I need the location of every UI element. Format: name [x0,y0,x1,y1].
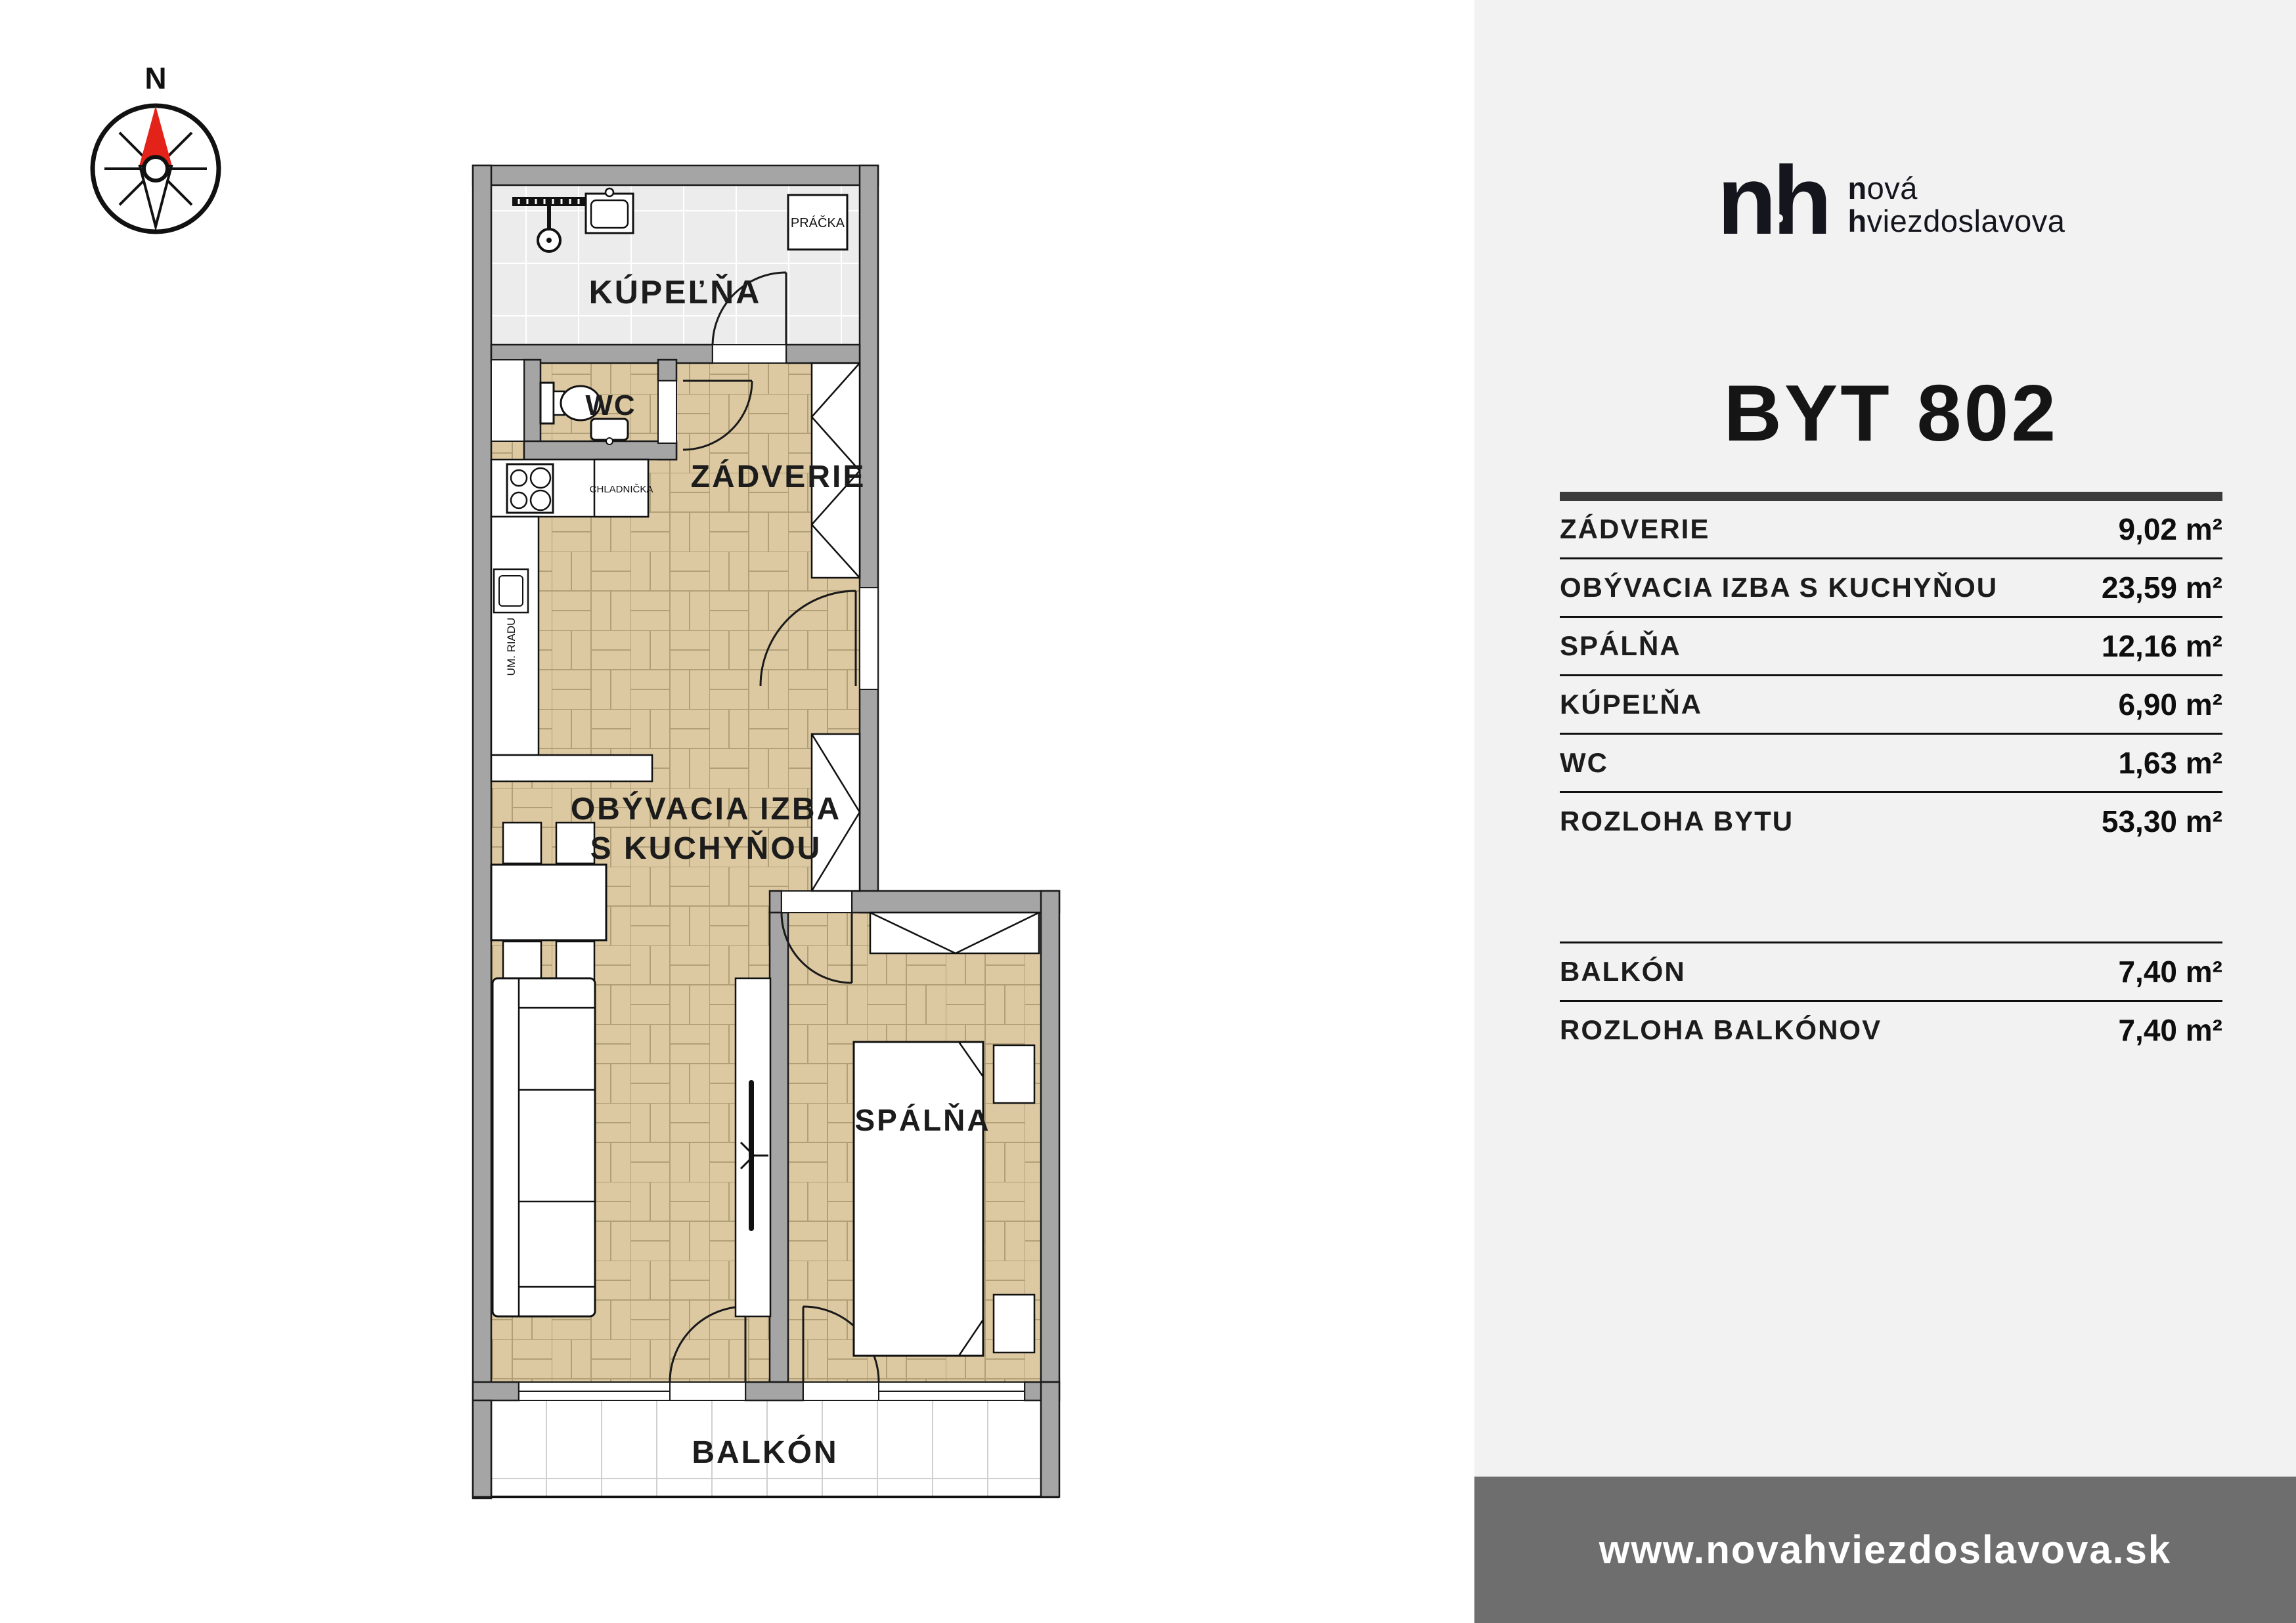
bath-sink-icon [586,188,633,233]
bedroom-window [879,1382,1025,1400]
row-value: 6,90 m² [2118,687,2222,722]
washer-label: PRÁČKA [791,215,845,230]
bathroom-label: KÚPEĽŇA [589,274,762,311]
sofa [493,978,595,1316]
table-row-spalna: SPÁLŇA 12,16 m² [1560,618,2222,676]
footer-link[interactable]: www.novahviezdoslavova.sk [1599,1527,2171,1572]
wall-north [473,165,878,185]
balcony-label: BALKÓN [692,1434,838,1470]
row-value: 12,16 m² [2102,628,2222,664]
kitchen-sink-icon [494,569,528,613]
stove-icon [507,464,553,513]
footer-bar: www.novahviezdoslavova.sk [1474,1477,2296,1623]
table-row-balkon: BALKÓN 7,40 m² [1560,943,2222,1002]
hall-label: ZÁDVERIE [691,459,866,494]
logo-mark: nh [1717,163,1828,238]
logo-word-2: hviezdoslavova [1847,205,2065,238]
nightstand [994,1295,1034,1352]
living-balcony-door-opening [670,1382,745,1400]
row-label: BALKÓN [1560,956,1686,987]
logo: nh nová hviezdoslavova [1560,163,2222,238]
balcony-table: BALKÓN 7,40 m² ROZLOHA BALKÓNOV 7,40 m² [1560,941,2222,1058]
info-panel: nh nová hviezdoslavova BYT 802 ZÁDVERIE … [1474,0,2296,1623]
floor-plan-svg: N [0,0,1474,1623]
row-label: ROZLOHA BYTU [1560,806,1794,837]
kitchen-peninsula [491,755,652,781]
apartment-title: BYT 802 [1560,367,2222,459]
table-row-wc: WC 1,63 m² [1560,735,2222,793]
compass-n-label: N [144,61,166,95]
logo-mark-text: nh [1717,146,1828,255]
wc-label: WC [585,389,636,422]
table-row-kupelna: KÚPEĽŇA 6,90 m² [1560,676,2222,735]
row-label: OBÝVACIA IZBA S KUCHYŇOU [1560,572,1998,603]
living-window [519,1382,670,1400]
row-value: 9,02 m² [2118,511,2222,547]
balcony-pillar-left [473,1400,491,1497]
bedroom-balcony-door-opening [803,1382,879,1400]
wc-sink-icon [591,419,628,444]
area-table: ZÁDVERIE 9,02 m² OBÝVACIA IZBA S KUCHYŇO… [1560,501,2222,1058]
row-value: 7,40 m² [2118,1012,2222,1048]
row-value: 23,59 m² [2102,570,2222,605]
fridge: CHLADNIČKA [590,460,653,517]
wall-east-upper [860,165,878,913]
dishwasher-label: UM. RIADU [505,618,518,676]
bathroom-door-opening [713,345,786,363]
table-row-total-area: ROZLOHA BYTU 53,30 m² [1560,793,2222,850]
row-label: SPÁLŇA [1560,630,1681,662]
logo-wordmark: nová hviezdoslavova [1847,163,2065,238]
living-label-line2: S KUCHYŇOU [590,830,822,866]
row-value: 53,30 m² [2102,804,2222,839]
wall-west [473,165,491,1498]
page: N [0,0,2296,1623]
living-label-line1: OBÝVACIA IZBA [571,791,841,827]
title-divider [1560,492,2222,501]
wc-door-opening [658,381,676,443]
row-label: ROZLOHA BALKÓNOV [1560,1014,1882,1046]
row-label: WC [1560,747,1608,779]
balcony-pillar-right [1041,1382,1059,1497]
row-label: KÚPEĽŇA [1560,689,1702,720]
dining-table [491,865,606,940]
floor-plan-area: N [0,0,1474,1623]
entrance-door-opening [860,588,878,689]
logo-word-1: nová [1847,172,2065,205]
shaft-niche [491,360,524,441]
bedroom-door-opening [782,891,852,913]
row-label: ZÁDVERIE [1560,513,1710,545]
tv-unit [736,978,770,1316]
compass-icon: N [93,61,219,232]
bedroom-label: SPÁLŇA [854,1103,990,1137]
washing-machine: PRÁČKA [788,195,847,249]
table-row-total-balconies: ROZLOHA BALKÓNOV 7,40 m² [1560,1002,2222,1058]
fridge-label: CHLADNIČKA [590,484,653,495]
row-value: 1,63 m² [2118,745,2222,781]
row-value: 7,40 m² [2118,954,2222,989]
nightstand [994,1045,1034,1103]
table-row-obyvacia: OBÝVACIA IZBA S KUCHYŇOU 23,59 m² [1560,559,2222,618]
bedroom-wardrobe [870,913,1039,953]
table-row-zadverie: ZÁDVERIE 9,02 m² [1560,501,2222,559]
table-gap [1560,850,2222,941]
